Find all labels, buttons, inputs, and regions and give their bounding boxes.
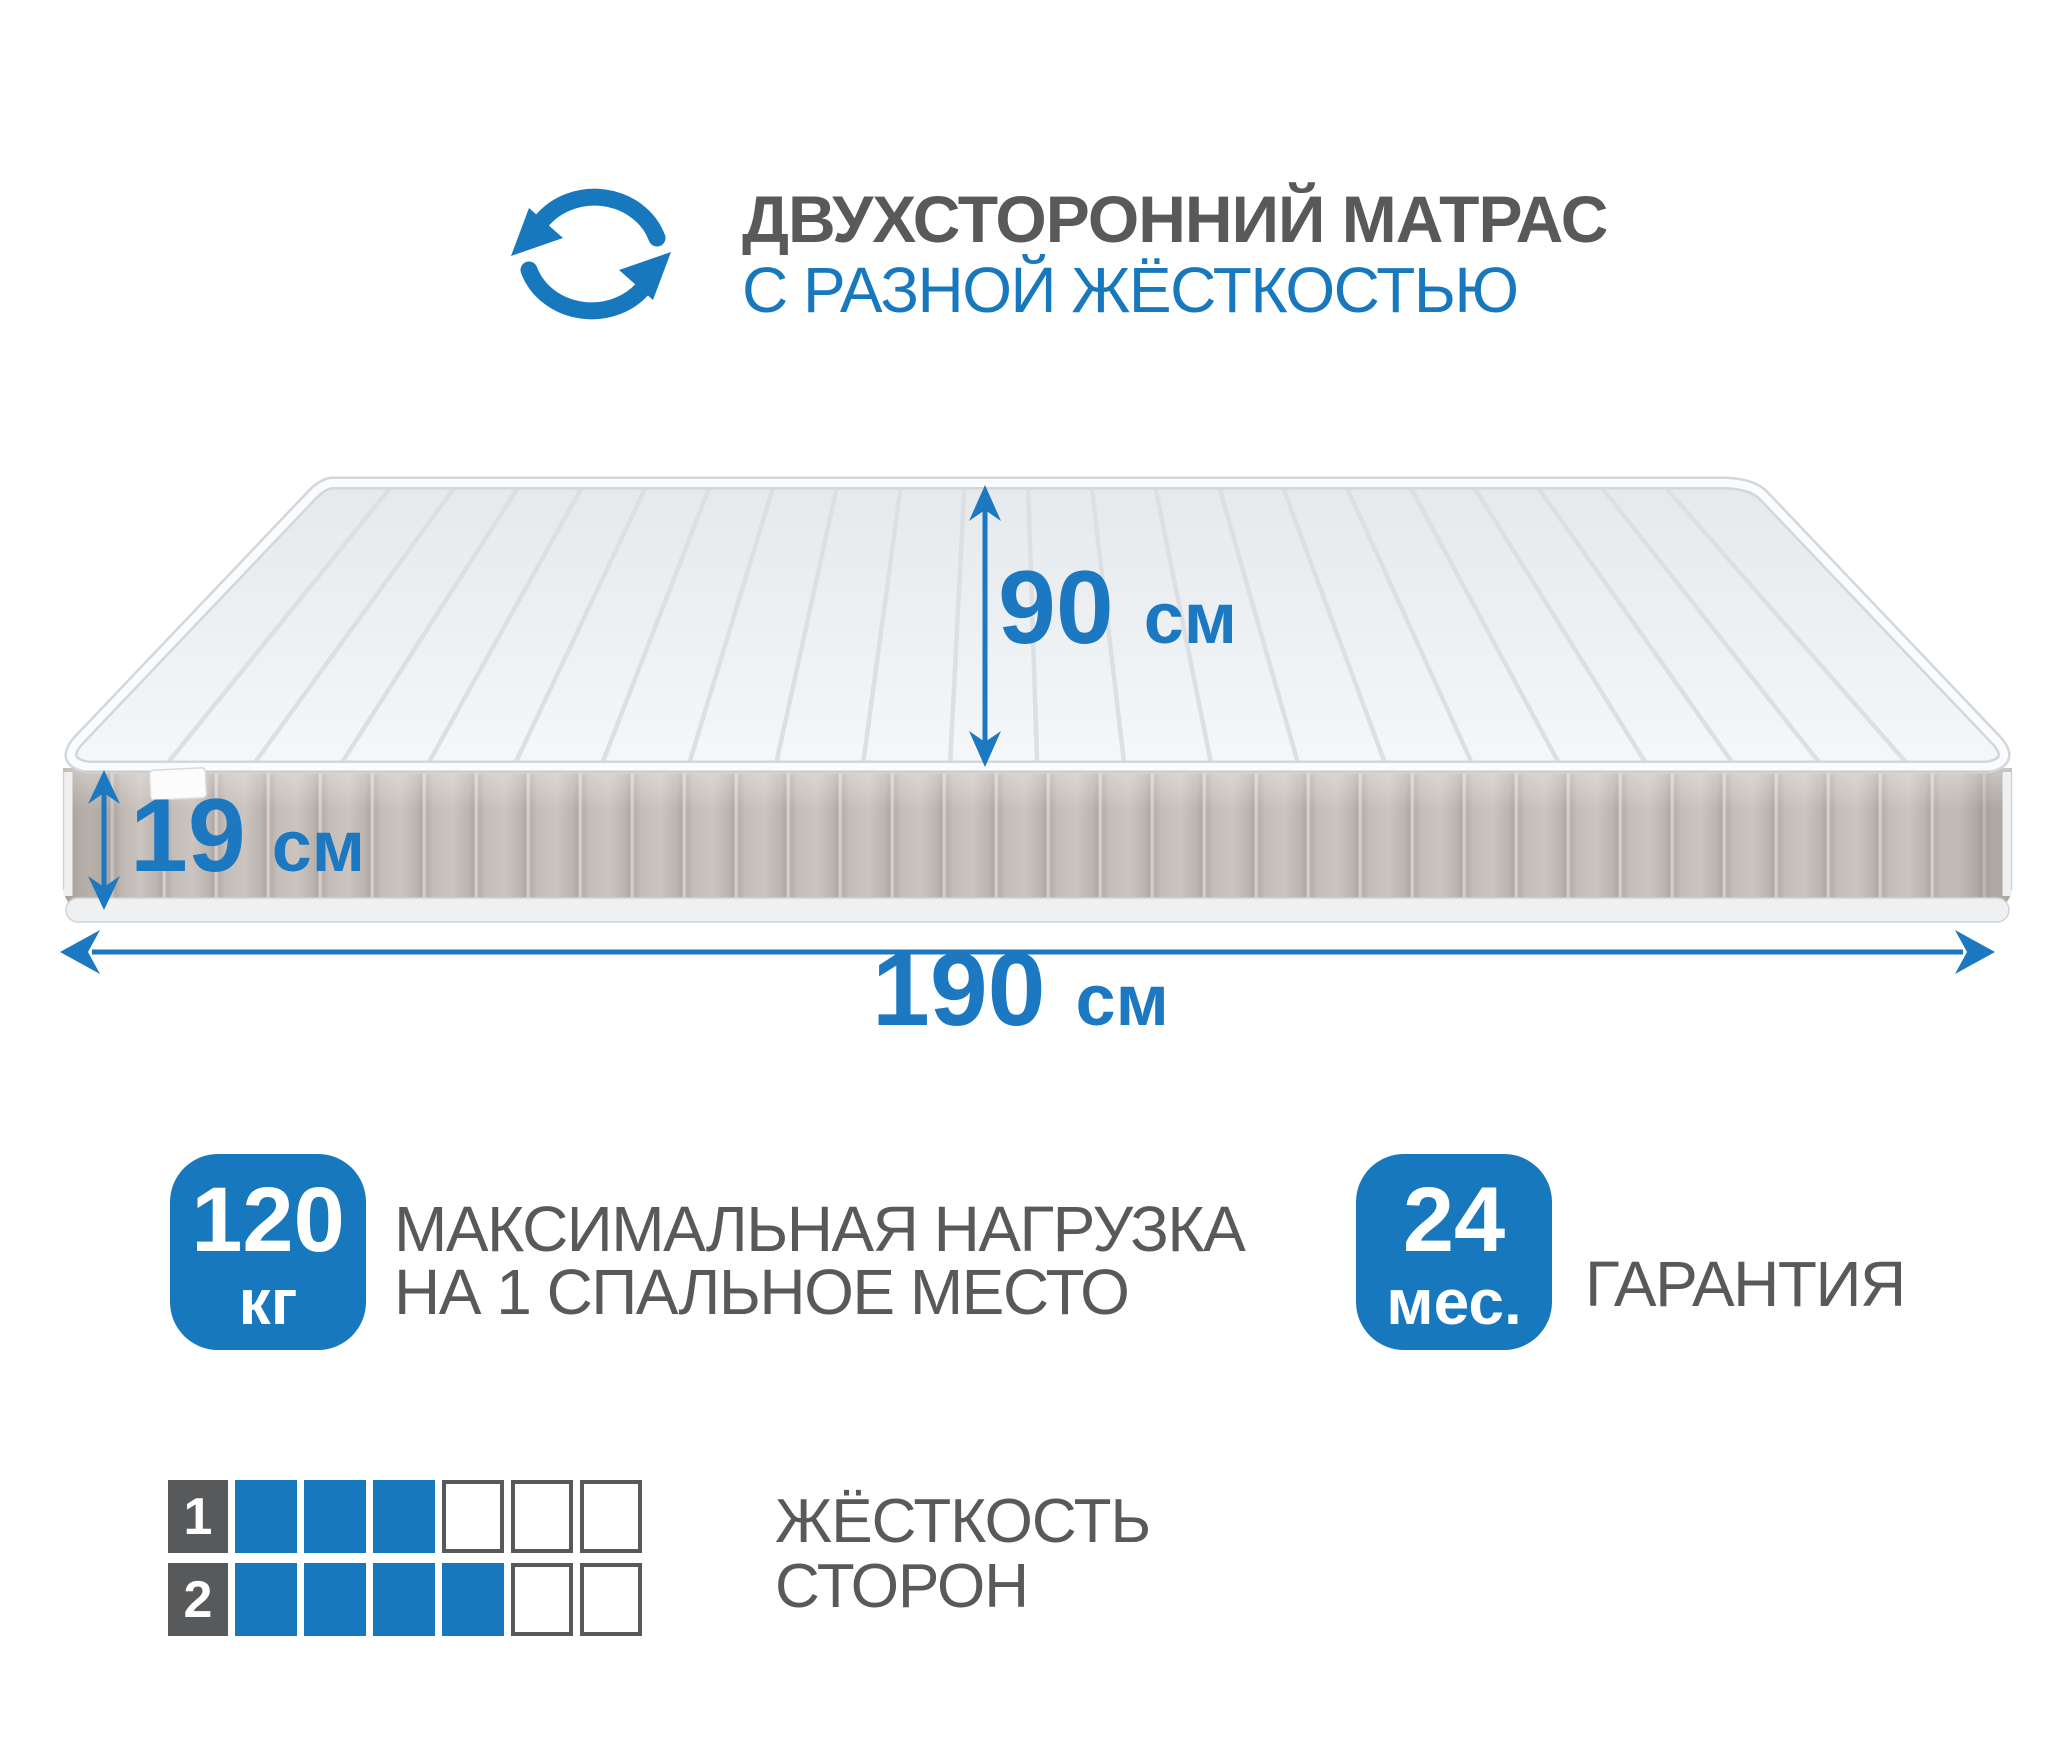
warranty-badge: 24 мес.	[1356, 1154, 1552, 1350]
height-unit: см	[272, 811, 365, 883]
max-load-value: 120	[191, 1174, 345, 1266]
firmness-cell-filled	[235, 1480, 297, 1553]
max-load-unit: кг	[239, 1270, 298, 1334]
firmness-cell-empty	[511, 1563, 573, 1636]
max-load-badge: 120 кг	[170, 1154, 366, 1350]
firmness-side2-number: 2	[168, 1563, 228, 1636]
firmness-cell-empty	[580, 1480, 642, 1553]
warranty-label: ГАРАНТИЯ	[1585, 1252, 1905, 1316]
firmness-cell-filled	[304, 1480, 366, 1553]
height-dimension-label: 19 см	[130, 784, 365, 888]
height-value: 19	[130, 784, 246, 888]
firmness-cell-filled	[304, 1563, 366, 1636]
mattress-bottom-piping	[66, 898, 2009, 922]
firmness-cells-side1	[228, 1480, 642, 1553]
warranty-unit: мес.	[1386, 1270, 1521, 1334]
width-dimension-label: 90 см	[998, 556, 1237, 660]
firmness-row-side2: 2	[168, 1563, 642, 1636]
firmness-cell-filled	[373, 1480, 435, 1553]
length-value: 190	[872, 938, 1046, 1042]
mattress-infographic: ДВУХСТОРОННИЙ МАТРАС С РАЗНОЙ ЖЁСТКОСТЬЮ	[0, 0, 2048, 1757]
firmness-label-line1: ЖЁСТКОСТЬ	[775, 1491, 1150, 1553]
firmness-cell-empty	[442, 1480, 504, 1553]
firmness-cell-filled	[373, 1563, 435, 1636]
firmness-cell-filled	[442, 1563, 504, 1636]
length-unit: см	[1076, 965, 1169, 1037]
firmness-side1-number: 1	[168, 1480, 228, 1553]
firmness-row-side1: 1	[168, 1480, 642, 1553]
warranty-value: 24	[1403, 1174, 1505, 1266]
length-dimension-label: 190 см	[872, 938, 1169, 1042]
firmness-cell-empty	[511, 1480, 573, 1553]
max-load-caption-line1: МАКСИМАЛЬНАЯ НАГРУЗКА	[394, 1197, 1244, 1261]
firmness-label-line2: СТОРОН	[775, 1556, 1028, 1618]
width-value: 90	[998, 556, 1114, 660]
width-unit: см	[1144, 583, 1237, 655]
firmness-cells-side2	[228, 1563, 642, 1636]
firmness-cell-filled	[235, 1563, 297, 1636]
firmness-cell-empty	[580, 1563, 642, 1636]
max-load-caption-line2: НА 1 СПАЛЬНОЕ МЕСТО	[394, 1260, 1128, 1324]
